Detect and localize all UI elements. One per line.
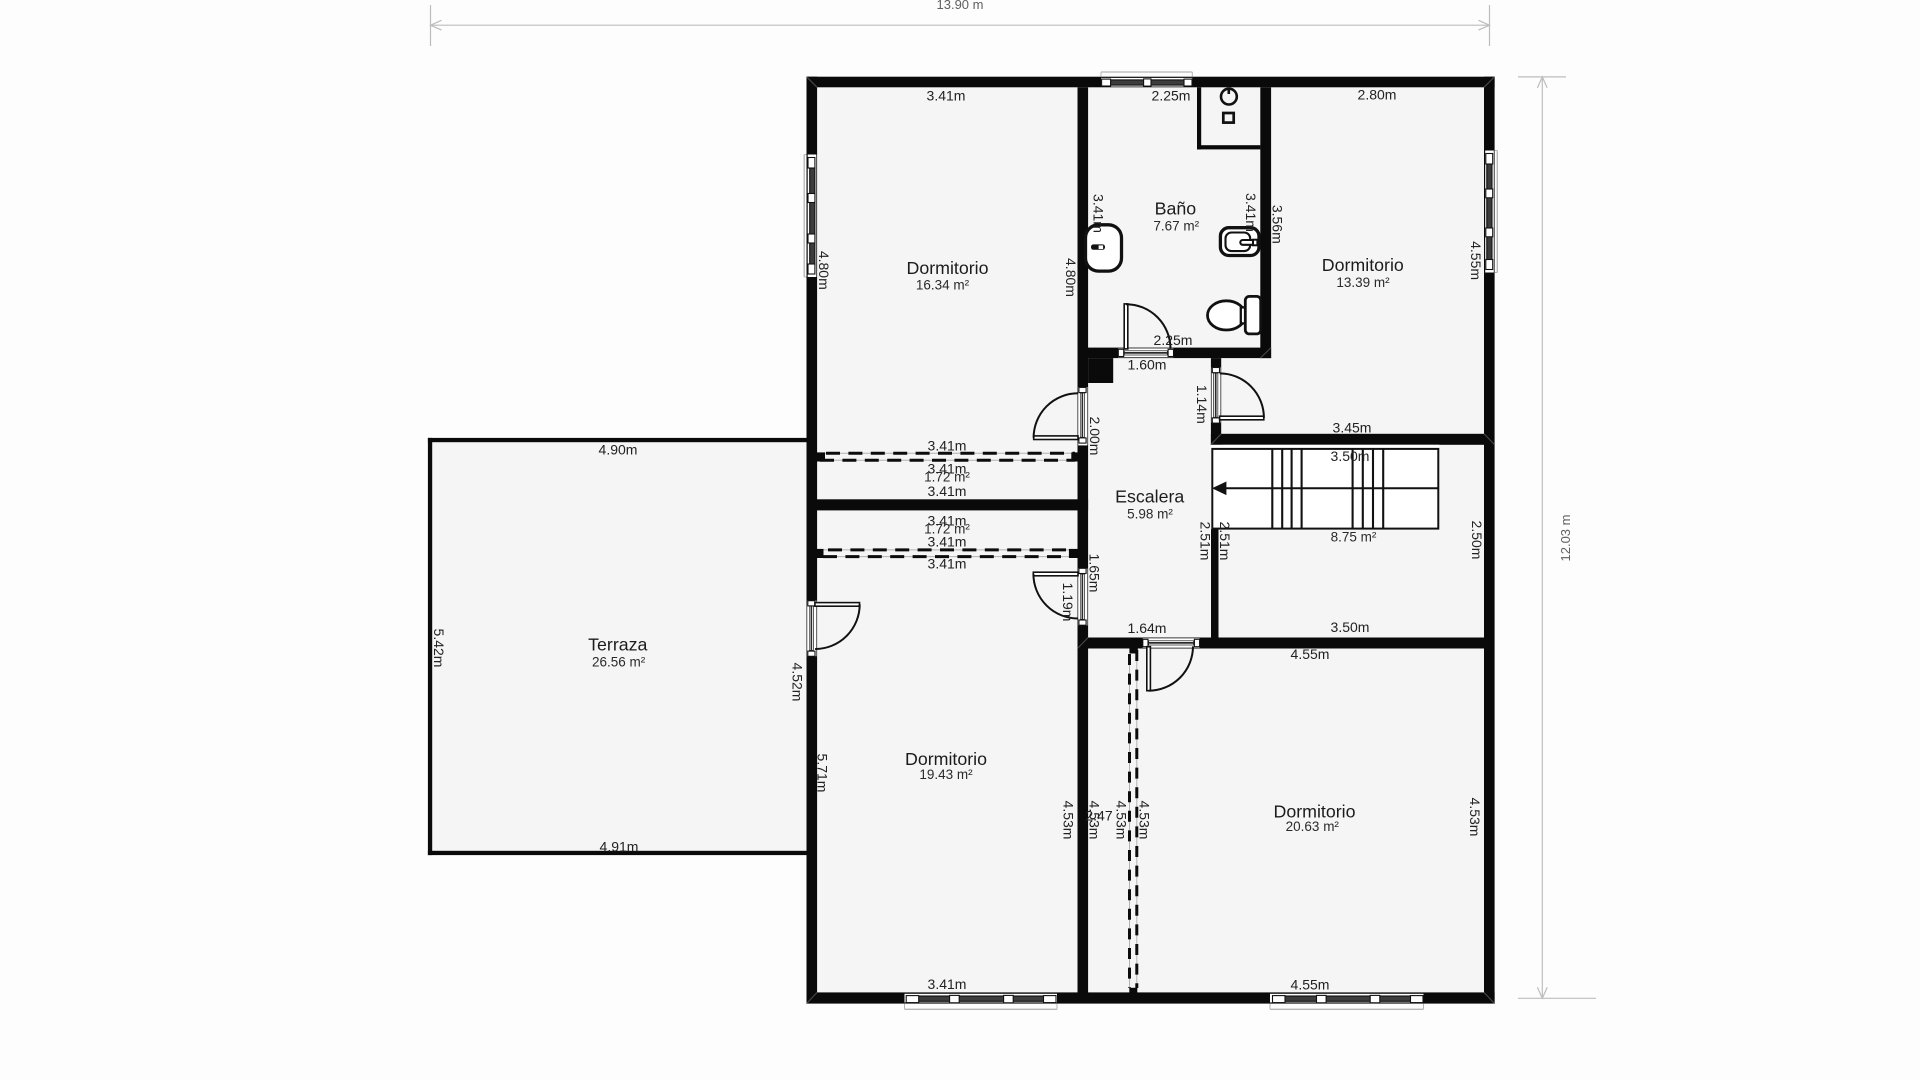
svg-text:8.75 m²: 8.75 m² [1331, 530, 1377, 545]
svg-text:Dormitorio: Dormitorio [905, 749, 987, 769]
svg-text:1.14m: 1.14m [1194, 385, 1210, 424]
svg-text:2.47: 2.47 [1085, 808, 1112, 824]
svg-text:2.00m: 2.00m [1087, 417, 1103, 456]
svg-text:3.41m: 3.41m [928, 534, 967, 550]
svg-text:7.67 m²: 7.67 m² [1153, 219, 1199, 234]
svg-text:4.53m: 4.53m [1060, 801, 1076, 840]
svg-text:3.50m: 3.50m [1331, 619, 1370, 635]
svg-text:3.41m: 3.41m [928, 438, 967, 454]
svg-text:Escalera: Escalera [1115, 487, 1184, 507]
svg-text:4.55m: 4.55m [1291, 646, 1330, 662]
svg-text:5.71m: 5.71m [815, 754, 831, 793]
svg-text:5.42m: 5.42m [431, 629, 447, 668]
svg-text:4.55m: 4.55m [1468, 241, 1484, 280]
svg-text:19.43 m²: 19.43 m² [919, 767, 973, 782]
svg-text:4.91m: 4.91m [600, 839, 639, 855]
svg-text:12.03 m: 12.03 m [1558, 515, 1573, 562]
svg-text:1.60m: 1.60m [1128, 357, 1167, 373]
svg-text:Terraza: Terraza [588, 634, 647, 654]
svg-text:4.55m: 4.55m [1291, 977, 1330, 993]
svg-text:Dormitorio: Dormitorio [1322, 255, 1404, 275]
svg-text:4.53m: 4.53m [1467, 798, 1483, 837]
svg-text:4.52m: 4.52m [790, 663, 806, 702]
svg-text:3.41m: 3.41m [927, 87, 966, 103]
svg-text:2.25m: 2.25m [1152, 88, 1191, 104]
svg-text:4.80m: 4.80m [816, 251, 832, 290]
svg-text:16.34 m²: 16.34 m² [916, 278, 970, 293]
svg-text:4.90m: 4.90m [599, 442, 638, 458]
svg-text:3.50m: 3.50m [1331, 448, 1370, 464]
svg-text:5.98 m²: 5.98 m² [1127, 507, 1173, 522]
svg-text:3.45m: 3.45m [1333, 420, 1372, 436]
svg-text:2.50m: 2.50m [1469, 521, 1485, 560]
svg-text:20.63 m²: 20.63 m² [1286, 819, 1340, 834]
svg-text:3.41m: 3.41m [928, 976, 967, 992]
svg-text:1.65m: 1.65m [1086, 554, 1102, 593]
svg-text:2.25m: 2.25m [1154, 332, 1193, 348]
svg-text:2.80m: 2.80m [1358, 87, 1397, 103]
svg-text:4.53m: 4.53m [1113, 801, 1129, 840]
svg-text:3.41m: 3.41m [1090, 194, 1106, 233]
svg-text:4.80m: 4.80m [1063, 258, 1079, 297]
svg-text:3.41m: 3.41m [1243, 193, 1259, 232]
svg-text:3.56m: 3.56m [1269, 205, 1285, 244]
svg-text:3.41m: 3.41m [928, 483, 967, 499]
svg-text:2.51m: 2.51m [1198, 522, 1214, 561]
svg-text:1.64m: 1.64m [1128, 620, 1167, 636]
svg-text:4.53m: 4.53m [1136, 801, 1152, 840]
svg-text:Dormitorio: Dormitorio [906, 258, 988, 278]
svg-text:Baño: Baño [1155, 199, 1197, 219]
svg-text:3.41m: 3.41m [928, 556, 967, 572]
svg-text:26.56 m²: 26.56 m² [592, 654, 646, 669]
svg-text:13.90 m: 13.90 m [937, 0, 984, 12]
svg-text:2.51m: 2.51m [1217, 522, 1233, 561]
svg-text:13.39 m²: 13.39 m² [1336, 275, 1390, 290]
svg-text:1.19m: 1.19m [1060, 583, 1076, 622]
